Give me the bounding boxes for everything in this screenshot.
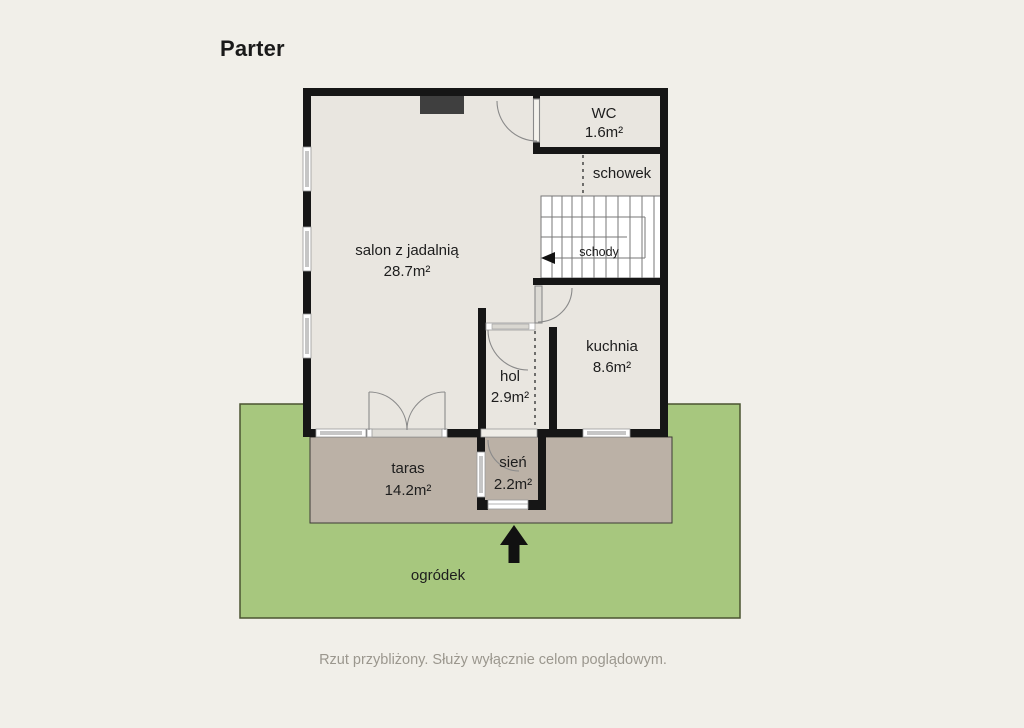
window-left-1 (303, 147, 311, 191)
chimney-niche (420, 96, 464, 114)
window-left-3 (303, 314, 311, 358)
wall-right (660, 88, 668, 437)
room-label-hol: hol (500, 368, 520, 385)
room-label-schowek: schowek (593, 165, 652, 182)
room-label-ogrodek: ogródek (411, 567, 466, 584)
wall-hall-left (478, 308, 486, 429)
room-area-hol: 2.9m² (491, 389, 529, 406)
terrace-slab (310, 437, 672, 523)
wall-vestibule-right (538, 437, 546, 510)
room-label-salon: salon z jadalnią (355, 242, 459, 259)
window-bottom-salon (316, 429, 366, 437)
room-area-salon: 28.7m² (384, 263, 431, 280)
room-area-taras: 14.2m² (385, 482, 432, 499)
room-label-sien: sień (499, 454, 527, 471)
room-area-sien: 2.2m² (494, 476, 532, 493)
wall-stairs-bottom (533, 278, 668, 285)
floor-plan: WC 1.6m² schowek schody salon z jadalnią… (0, 0, 1024, 723)
wall-entrance-stub-left (477, 500, 488, 510)
room-area-wc: 1.6m² (585, 124, 623, 141)
disclaimer-caption: Rzut przybliżony. Służy wyłącznie celom … (319, 652, 667, 668)
room-label-kuchnia: kuchnia (586, 338, 638, 355)
room-label-wc: WC (592, 105, 617, 122)
floor-title: Parter (220, 36, 285, 62)
wall-entrance-stub-right (528, 500, 546, 510)
room-label-schody: schody (579, 245, 619, 259)
room-area-kuchnia: 8.6m² (593, 359, 631, 376)
window-vestibule-left (477, 452, 485, 497)
wall-kitchen-left (549, 327, 557, 429)
stairs (541, 196, 666, 278)
window-left-2 (303, 227, 311, 271)
room-label-taras: taras (391, 460, 424, 477)
window-bottom-kitchen (583, 429, 630, 437)
wall-top (303, 88, 668, 96)
wall-wc-bottom (533, 147, 668, 154)
